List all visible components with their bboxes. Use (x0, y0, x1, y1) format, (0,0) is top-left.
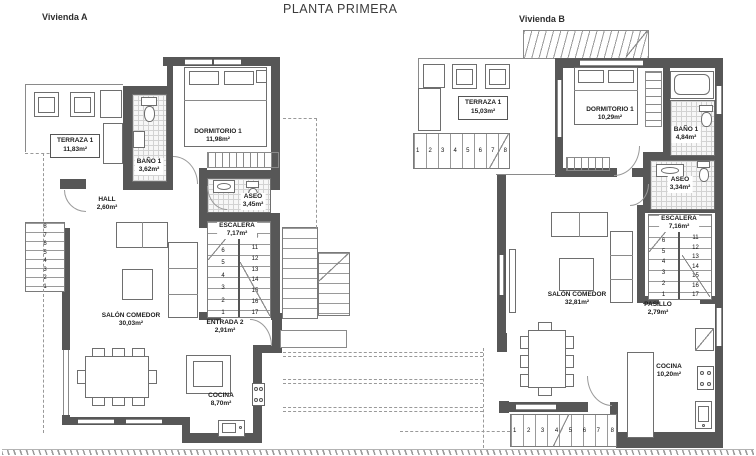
wall (60, 179, 86, 189)
stair-diagonal (240, 262, 270, 316)
toilet-tank (246, 181, 259, 188)
window (557, 80, 562, 137)
stair-diagonal (553, 414, 569, 447)
sofa-cushion-line (168, 294, 198, 295)
stair-diagonal (682, 255, 710, 297)
wall (715, 62, 723, 448)
sofa-cushion-line (579, 212, 580, 237)
wardrobe (645, 71, 662, 127)
window (716, 86, 722, 114)
armchair-cushion (456, 69, 473, 85)
room-area-label: 15,03m² (471, 108, 495, 117)
room-label-cocina-b: COCINA 10,20m² (656, 363, 682, 380)
page-title: PLANTA PRIMERA (283, 2, 397, 16)
room-label-cocina-a: COCINA 8,70m² (208, 392, 234, 409)
sink-basin (661, 167, 679, 174)
stair-number: 12 (692, 245, 699, 251)
window (716, 308, 722, 346)
bathtub-basin (674, 74, 710, 95)
room-label-dormitorio-b: DORMITORIO 1 10,29m² (586, 106, 634, 123)
stair-number: 5 (466, 148, 469, 154)
chair (112, 397, 125, 406)
toilet (701, 112, 712, 127)
room-area-label: 4,84m² (676, 134, 697, 142)
armchair-cushion (38, 97, 55, 113)
window (63, 350, 69, 415)
porch-step (280, 330, 347, 348)
stair-number: 2 (527, 428, 530, 434)
room-name-label: ASEO (244, 193, 262, 201)
chair (148, 370, 157, 384)
vivienda-b-label: Vivienda B (519, 14, 565, 24)
room-label-dormitorio-a: DORMITORIO 1 11,98m² (194, 128, 242, 145)
room-label-escalera-a: ESCALERA 7,17m² (217, 222, 257, 239)
window (126, 419, 162, 424)
sofa-cushion-line (610, 279, 633, 280)
wall (201, 213, 280, 221)
stair-treads (283, 228, 317, 318)
kitchen-sink-basin (222, 423, 236, 433)
stair-number: 4 (221, 273, 224, 279)
room-name-label: BAÑO 1 (674, 126, 699, 134)
chair (538, 322, 552, 331)
cooktop (697, 366, 714, 390)
room-label-terraza-b: TERRAZA 1 15,03m² (458, 96, 508, 120)
exterior-stairs-a-left: 87654321 (25, 222, 65, 292)
room-area-label: 30,03m² (119, 320, 143, 328)
exterior-stairs-a-right (282, 227, 318, 319)
room-area-label: 3,34m² (670, 184, 691, 192)
railing (25, 84, 123, 85)
armchair-cushion (489, 69, 506, 85)
room-name-label: ESCALERA (219, 222, 255, 230)
room-name-label: BAÑO 1 (137, 158, 162, 166)
toilet (144, 106, 155, 122)
chair (92, 397, 105, 406)
site-dashed-line (283, 118, 317, 119)
stair-number: 5 (221, 260, 224, 266)
room-area-label: 10,29m² (598, 114, 622, 122)
room-label-pasillo-b: PASILLO 2,79m² (644, 301, 672, 318)
room-label-aseo-a: ASEO 3,45m² (241, 193, 266, 210)
stair-number: 2 (662, 281, 665, 287)
armchair-cushion (74, 97, 91, 113)
room-label-bano-b: BAÑO 1 4,84m² (672, 126, 701, 143)
room-name-label: ENTRADA 2 (207, 319, 244, 327)
room-area-label: 32,81m² (565, 299, 589, 307)
path-dashed-line (283, 352, 483, 353)
stair-number: 7 (597, 428, 600, 434)
stair-number: 3 (441, 148, 444, 154)
kitchen-sink-basin (698, 406, 709, 422)
toilet (699, 168, 709, 182)
site-dashed-line (43, 153, 44, 433)
chair (538, 387, 552, 396)
room-area-label: 2,79m² (648, 309, 669, 317)
path-dashed-line (283, 356, 483, 357)
sofa (103, 123, 123, 164)
wardrobe (207, 152, 279, 168)
room-area-label: 7,17m² (227, 230, 248, 238)
railing (25, 84, 26, 152)
chaise-sofa (610, 231, 633, 303)
stair-number: 11 (692, 235, 698, 241)
railing (418, 58, 555, 59)
kitchen-island-top (193, 361, 223, 387)
path-dashed-line (483, 348, 484, 448)
room-area-label: 2,60m² (97, 204, 118, 212)
room-name-label: TERRAZA 1 (57, 137, 93, 146)
sofa-cushion-line (168, 268, 198, 269)
pillow (224, 71, 254, 85)
chair (520, 336, 529, 349)
room-label-entrada-a: ENTRADA 2 2,91m² (207, 319, 244, 336)
chair (520, 374, 529, 387)
stair-number: 6 (583, 428, 586, 434)
room-name-label: HALL (98, 196, 115, 204)
chaise-sofa (168, 242, 198, 318)
floor-plan: PLANTA PRIMERA Vivienda A Vivienda B TER… (0, 0, 756, 456)
door-arc (173, 156, 198, 184)
pillow (189, 71, 219, 85)
stair-number: 4 (454, 148, 457, 154)
path-dashed-line (283, 383, 483, 384)
room-name-label: SALÓN COMEDOR (548, 291, 607, 299)
chair (565, 374, 574, 387)
room-name-label: PASILLO (644, 301, 672, 309)
stair-number: 11 (252, 245, 258, 251)
wall-line (496, 174, 556, 175)
chair (92, 348, 105, 357)
stair-number: 2 (221, 298, 224, 304)
wall (271, 213, 280, 320)
site-dashed-line (316, 118, 317, 228)
stair-number: 2 (429, 148, 432, 154)
chair (112, 348, 125, 357)
chair (565, 355, 574, 368)
side-table (100, 90, 122, 118)
stair-number: 3 (662, 270, 665, 276)
stair-number: 6 (479, 148, 482, 154)
wall (253, 345, 282, 353)
window (78, 419, 114, 424)
window (214, 59, 241, 65)
room-name-label: TERRAZA 1 (465, 99, 501, 108)
room-label-aseo-b: ASEO 3,34m² (668, 176, 693, 193)
room-name-label: ASEO (671, 176, 689, 184)
room-label-salon-b: SALÓN COMEDOR 32,81m² (548, 291, 607, 308)
dining-table (528, 330, 566, 388)
side-table (423, 64, 445, 88)
blanket-line (184, 100, 267, 101)
chair (132, 397, 145, 406)
tv-cabinet (509, 249, 516, 313)
nightstand (256, 70, 267, 83)
door-arc (250, 319, 272, 346)
boundary-hatch (2, 449, 754, 455)
closet (566, 157, 610, 171)
faucet (239, 426, 242, 429)
stair-diagonal (318, 252, 350, 282)
room-area-label: 2,91m² (215, 327, 236, 335)
room-label-escalera-b: ESCALERA 7,16m² (659, 215, 699, 232)
room-name-label: DORMITORIO 1 (194, 128, 242, 136)
path-dashed-line (400, 431, 510, 432)
wall (123, 86, 132, 190)
room-label-salon-a: SALÓN COMEDOR 30,03m² (102, 312, 161, 329)
sofa (418, 88, 441, 131)
room-label-terraza-a: TERRAZA 1 11,83m² (50, 134, 100, 158)
pillow (608, 70, 634, 83)
room-name-label: ESCALERA (661, 215, 697, 223)
room-area-label: 8,70m² (211, 400, 232, 408)
door-arc (64, 190, 86, 212)
sink (133, 131, 145, 148)
window (580, 60, 643, 66)
stair-number: 1 (662, 292, 665, 298)
wall (201, 170, 280, 178)
toilet-tank (699, 105, 713, 112)
room-name-label: COCINA (656, 363, 682, 371)
window (499, 255, 504, 295)
window (185, 59, 212, 65)
wall (497, 333, 507, 352)
chair (77, 370, 86, 384)
blanket-line (574, 90, 638, 91)
dining-table (85, 356, 149, 398)
cooktop (252, 383, 265, 406)
stair-diagonal (489, 133, 509, 169)
pillow (578, 70, 604, 83)
path-dashed-line (283, 411, 483, 412)
fridge-diagonal (695, 328, 714, 351)
stair-number: 1 (416, 148, 419, 154)
stair-number: 5 (569, 428, 572, 434)
kitchen-island (627, 352, 654, 438)
chair (565, 336, 574, 349)
stair-numbers: 87654321 (26, 223, 64, 291)
sofa-cushion-line (142, 222, 143, 248)
room-name-label: COCINA (208, 392, 234, 400)
path-dashed-line (283, 379, 483, 380)
room-label-bano-a: BAÑO 1 3,62m² (135, 158, 164, 175)
wall (123, 182, 173, 190)
path-dashed-line (283, 407, 483, 408)
room-area-label: 11,83m² (63, 146, 87, 155)
vivienda-a-label: Vivienda A (42, 12, 88, 22)
wall (637, 205, 645, 303)
wall (663, 62, 670, 158)
coffee-table (559, 258, 594, 291)
window (516, 404, 556, 410)
pergola-diagonal (626, 31, 647, 57)
coffee-table (122, 269, 153, 300)
stair-number: 4 (662, 259, 665, 265)
stair-number: 12 (252, 256, 259, 262)
room-area-label: 7,16m² (669, 223, 690, 231)
room-area-label: 11,98m² (206, 136, 230, 144)
faucet (702, 424, 705, 427)
room-area-label: 3,45m² (243, 201, 264, 209)
room-name-label: SALÓN COMEDOR (102, 312, 161, 320)
room-area-label: 3,62m² (139, 166, 160, 174)
stair-number: 3 (541, 428, 544, 434)
toilet-tank (697, 161, 710, 168)
stair-number: 8 (611, 428, 614, 434)
sofa-cushion-line (610, 255, 633, 256)
door-arc (587, 376, 612, 406)
stair-number: 1 (513, 428, 516, 434)
room-name-label: DORMITORIO 1 (586, 106, 634, 114)
toilet-tank (141, 97, 157, 106)
chair (520, 355, 529, 368)
stair-number: 1 (221, 310, 224, 316)
room-label-hall-a: HALL 2,60m² (97, 196, 118, 213)
stair-number: 3 (221, 285, 224, 291)
room-area-label: 10,20m² (657, 371, 681, 379)
chair (132, 348, 145, 357)
